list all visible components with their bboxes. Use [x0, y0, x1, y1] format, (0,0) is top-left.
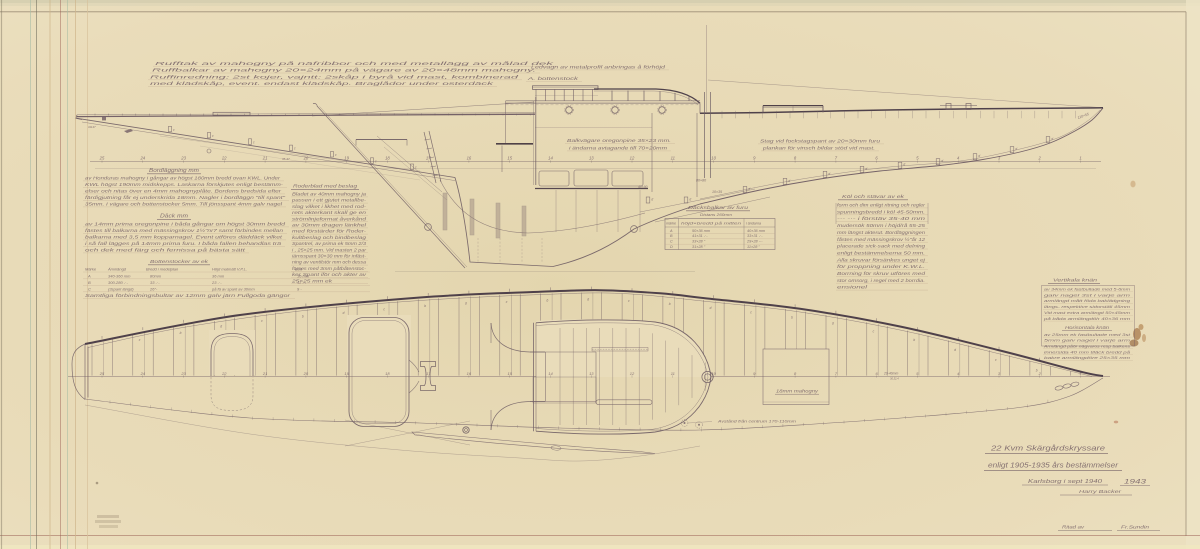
svg-text:300-280 -·-: 300-280 -·-	[108, 280, 128, 285]
svg-text:d: d	[710, 306, 712, 310]
svg-text:bakre armlängdöre 25×35 mm: bakre armlängdöre 25×35 mm	[1044, 355, 1131, 360]
svg-text:5mm galv nagel i varje arm: 5mm galv nagel i varje arm	[1044, 338, 1131, 343]
svg-text:13: 13	[589, 156, 594, 161]
svg-text:av 30mm dragen länkhel: av 30mm dragen länkhel	[292, 223, 368, 228]
svg-text:Bottenstocker av ek: Bottenstocker av ek	[150, 259, 209, 265]
svg-text:d: d	[828, 172, 830, 176]
svg-text:340-360 mm: 340-360 mm	[108, 274, 131, 279]
svg-text:16: 16	[467, 156, 472, 161]
svg-text:ning av ventilstör mm och dess: ning av ventilstör mm och dessa	[292, 260, 367, 265]
svg-text:22: 22	[221, 156, 227, 161]
svg-text:Bordläggning mm: Bordläggning mm	[149, 168, 199, 174]
svg-text:färdigjutning får ej underskri: färdigjutning får ej underskrida 18mm. N…	[85, 195, 286, 200]
svg-text:i ändarna avtagande till 70×20: i ändarna avtagande till 70×20mm	[569, 146, 668, 151]
svg-text:b: b	[547, 298, 549, 302]
svg-text:11: 11	[671, 371, 675, 376]
svg-text:29-40mm: 29-40mm	[883, 372, 898, 376]
svg-text:i , 25×25 mm. Vid masten 2 p: i , 25×25 mm. Vid masten 2 par	[292, 247, 367, 252]
svg-text:20: 20	[303, 371, 309, 376]
svg-text:Horisontala knän: Horisontala knän	[1065, 325, 1110, 330]
svg-text:50×36 mm: 50×36 mm	[692, 229, 710, 233]
svg-text:slag vilket i likhet med rod-: slag vilket i likhet med rod-	[292, 204, 367, 209]
svg-text:35mm. I vägare och bottenstoc: 35mm. I vägare och bottenstocker 5mm. Ti…	[85, 202, 284, 207]
svg-text:19: 19	[344, 156, 349, 161]
svg-text:Roderblad med beslag: Roderblad med beslag	[293, 184, 358, 189]
svg-text:22 Kvm Skärgårdskryssare: 22 Kvm Skärgårdskryssare	[990, 444, 1105, 453]
svg-text:25×25 mm ek: 25×25 mm ek	[290, 278, 333, 283]
svg-text:23 -·-: 23 -·-	[211, 280, 222, 285]
svg-text:passen i ett gjutet metallbe-: passen i ett gjutet metallbe-	[291, 198, 367, 203]
svg-text:18: 18	[385, 156, 390, 161]
svg-text:33×31 -·-: 33×31 -·-	[747, 234, 763, 238]
svg-text:Distans 260mm: Distans 260mm	[700, 213, 732, 217]
svg-text:ensionel: ensionel	[837, 285, 869, 290]
svg-text:Fr.Sundin: Fr.Sundin	[1121, 525, 1150, 530]
svg-text:innersida 40 mm tiläck bredd: innersida 40 mm tiläck bredd på	[1044, 349, 1131, 354]
svg-text:13: 13	[589, 371, 594, 376]
svg-text:Ämnlängd: Ämnlängd	[107, 267, 127, 272]
svg-text:25: 25	[99, 371, 105, 376]
svg-text:Ledvagn av metalprofil anbring: Ledvagn av metalprofil anbringas å förhö…	[531, 64, 666, 70]
svg-text:D: D	[670, 245, 673, 249]
svg-text:16: 16	[467, 371, 472, 376]
svg-text:galv nagel 3st i varje arm: galv nagel 3st i varje arm	[1044, 292, 1132, 297]
svg-text:förses med 3mm påtbåtenstoc-: förses med 3mm påtbåtenstoc-	[292, 266, 367, 271]
svg-text:10×35: 10×35	[712, 190, 722, 194]
svg-text:b: b	[913, 338, 915, 342]
svg-text:1: 1	[1079, 371, 1081, 376]
svg-text:Ruffbalkar av mahogny 20×24mm: Ruffbalkar av mahogny 20×24mm på vägare …	[152, 68, 536, 73]
svg-text:Vid mast extra armlängd 50×45: Vid mast extra armlängd 50×45mm	[1044, 310, 1131, 315]
svg-text:Ruffinredning: 2st kojer, vajn: Ruffinredning: 2st kojer, vajntt: 2skåp …	[150, 74, 520, 79]
svg-text:A. bottenstock: A. bottenstock	[526, 76, 579, 81]
svg-text:strömlinjeformat åverkånd: strömlinjeformat åverkånd	[292, 216, 367, 221]
svg-text:12: 12	[630, 156, 635, 161]
svg-text:av Honduras mahogny i gångar a: av Honduras mahogny i gångar av högst 18…	[85, 176, 281, 181]
svg-text:A: A	[87, 274, 91, 279]
svg-text:med förstärder för Roder-: med förstärder för Roder-	[292, 229, 367, 234]
svg-text:balkarna med 3,5 mm kopparnage: balkarna med 3,5 mm kopparnagel. Event u…	[85, 235, 283, 240]
svg-text:i så fall lägges på 14mm prima: i så fall lägges på 14mm prima furu. I b…	[85, 241, 282, 246]
svg-text:33 -·-: 33 -·-	[150, 280, 160, 285]
svg-text:plankan för vinsch bildar stöd: plankan för vinsch bildar stöd vid mast.	[761, 146, 875, 151]
svg-text:10: 10	[711, 156, 716, 161]
svg-text:Höjd matmätt V.P.L.: Höjd matmätt V.P.L.	[212, 267, 247, 272]
svg-text:med klädskåp, event. endast kl: med klädskåp, event. endast klädskåp. Br…	[150, 81, 495, 86]
svg-text:Avstånd från centrum 170-110mm: Avstånd från centrum 170-110mm	[717, 420, 796, 424]
svg-text:spunningsbredd i köl 45-50mm.: spunningsbredd i köl 45-50mm.	[837, 209, 925, 214]
svg-text:elser och nitas över en 4mm ma: elser och nitas över en 4mm mahognyplåte…	[85, 189, 282, 194]
svg-text:b: b	[1036, 369, 1038, 373]
svg-text:b: b	[424, 304, 426, 308]
svg-text:Alla skruvar försänkes unget e: Alla skruvar försänkes unget ej	[835, 257, 926, 262]
svg-text:80×80: 80×80	[696, 179, 706, 183]
svg-text:d: d	[903, 163, 905, 167]
svg-text:33×28 ": 33×28 "	[692, 240, 706, 244]
svg-text:Köl och stävar av ek: Köl och stävar av ek	[842, 194, 905, 199]
svg-text:Inudersök 50mm i höjd/rå 55-25: Inudersök 50mm i höjd/rå 55-25	[837, 223, 926, 228]
svg-text:KWL högst 190mm midskepps. L: KWL högst 190mm midskepps. Laskarna förs…	[85, 182, 284, 187]
svg-text:b: b	[180, 331, 182, 335]
svg-text:av 14mm prima oregonpine i båd: av 14mm prima oregonpine i båda gångar o…	[85, 222, 286, 227]
svg-text:Bredd i medelplan: Bredd i medelplan	[146, 267, 179, 272]
svg-text:d: d	[788, 179, 790, 183]
svg-text:d: d	[465, 302, 467, 306]
svg-text:15: 15	[507, 156, 512, 161]
svg-text:placerade sick-sack med delnin: placerade sick-sack med delning	[836, 244, 926, 249]
svg-text:och dek med färg och fernissa: och dek med färg och fernissa på bästa s…	[85, 248, 247, 253]
svg-text:armlängd mått föda baklädgnin: armlängd mått föda baklädgning	[1044, 298, 1131, 303]
svg-text:rets akterkant skall ge en: rets akterkant skall ge en	[292, 210, 367, 215]
svg-text:31×28 ": 31×28 "	[692, 245, 706, 249]
svg-text:Armlängd påör nägvaros resp ba: Armlängd påör nägvaros resp balkens	[1043, 344, 1130, 349]
svg-text:d: d	[954, 348, 956, 352]
svg-text:A: A	[669, 229, 673, 233]
svg-text:15: 15	[507, 371, 512, 376]
svg-text:Samtliga förbindningsbultar av: Samtliga förbindningsbultar av 12mm galv…	[85, 293, 291, 298]
svg-text:Däcksbalkar av furu: Däcksbalkar av furu	[688, 205, 749, 210]
svg-text:d: d	[1015, 147, 1017, 151]
svg-text:11: 11	[671, 156, 675, 161]
svg-text:d: d	[1051, 137, 1053, 141]
svg-text:för proppning under K.W.L.: för proppning under K.W.L.	[837, 264, 925, 269]
svg-text:40×36 mm: 40×36 mm	[747, 229, 765, 233]
svg-text:form och dim enligt ritning oc: form och dim enligt ritning och regler	[837, 203, 926, 208]
svg-text:enligt bestämmelserna 50 mm.: enligt bestämmelserna 50 mm.	[837, 250, 925, 255]
svg-text:höjd×bredd på mitten: höjd×bredd på mitten	[681, 222, 741, 226]
svg-text:20: 20	[303, 156, 309, 161]
svg-text:Rufftak av mahogny på näfribbo: Rufftak av mahogny på näfribbor och med …	[155, 61, 555, 66]
svg-text:Karlsborg i sept 1940: Karlsborg i sept 1940	[1028, 479, 1102, 485]
svg-text:av 25mm ek fastbultade med 3st: av 25mm ek fastbultade med 3st	[1044, 332, 1131, 337]
svg-text:1943: 1943	[1124, 479, 1147, 486]
svg-text:41×31 -·-: 41×31 -·-	[692, 234, 708, 238]
svg-text:på båda armlängdöh 40×36 mm: på båda armlängdöh 40×36 mm	[1042, 316, 1131, 321]
svg-text:14: 14	[548, 371, 553, 376]
svg-text:11×28 ": 11×28 "	[747, 245, 760, 249]
svg-text:29×28 -·-: 29×28 -·-	[746, 240, 763, 244]
svg-text:31147: 31147	[88, 125, 96, 129]
svg-text:21: 21	[262, 371, 267, 376]
svg-text:stor omsorg, i regel med 2 bor: stor omsorg, i regel med 2 borrdia.	[837, 278, 925, 283]
svg-text:d: d	[651, 198, 653, 202]
svg-text:fästes till balkarna med mässi: fästes till balkarna med mässingskrov 1½…	[85, 228, 284, 233]
svg-text:d: d	[689, 198, 691, 202]
svg-text:Borrning för skruv utföres med: Borrning för skruv utföres med	[837, 271, 926, 276]
svg-text:enligt 1905-1935 års bestämmel: enligt 1905-1935 års bestämmelser	[988, 461, 1119, 470]
svg-text:40×90: 40×90	[638, 185, 648, 189]
svg-text:d: d	[865, 167, 867, 171]
svg-text:b: b	[669, 302, 671, 306]
svg-text:22: 22	[221, 371, 227, 376]
svg-text:Stag vid fockstagspant av 20×3: Stag vid fockstagspant av 20×30mm furu	[760, 139, 881, 144]
svg-text:B: B	[88, 280, 91, 285]
svg-text:Ritad av: Ritad av	[1062, 525, 1085, 530]
svg-text:9 -: 9 -	[297, 287, 302, 292]
svg-text:b: b	[302, 315, 304, 319]
svg-text:Harry Backer: Harry Backer	[1079, 489, 1122, 495]
svg-text:14: 14	[548, 156, 553, 161]
svg-text:23: 23	[180, 371, 186, 376]
svg-text:Däck mm: Däck mm	[160, 214, 188, 220]
svg-text:Vertikala knän: Vertikala knän	[1053, 278, 1098, 283]
svg-text:kultbeslag och bindbeslag: kultbeslag och bindbeslag	[292, 235, 367, 240]
svg-text:märke: märke	[666, 222, 676, 226]
svg-text:36 mm: 36 mm	[212, 274, 225, 279]
svg-text:d: d	[978, 154, 980, 158]
svg-text:1: 1	[1079, 156, 1081, 161]
svg-text:mm längst akterut. Bordläggnin: mm längst akterut. Bordläggningen	[837, 230, 926, 235]
svg-text:ker Spant iför och akter av: ker Spant iför och akter av	[292, 272, 367, 277]
svg-text:d: d	[220, 325, 222, 329]
svg-text:av 34mm ek fastbultade med 5-6: av 34mm ek fastbultade med 5-6mm	[1044, 287, 1131, 292]
svg-text:26"-: 26"-	[149, 287, 158, 292]
svg-text:-·- -·- i förstäv 35-40 m: -·- -·- i förstäv 35-40 mm	[837, 216, 926, 221]
svg-text:d: d	[941, 159, 943, 163]
svg-text:30,32,4: 30,32,4	[890, 377, 899, 381]
svg-text:18: 18	[385, 371, 390, 376]
svg-text:fåstes med mässingskrov ½"år 1: fåstes med mässingskrov ½"år 12	[837, 237, 926, 242]
svg-text:Märke: Märke	[85, 267, 97, 272]
svg-text:Bladet av 40mm mahogny ja: Bladet av 40mm mahogny ja	[292, 192, 367, 197]
svg-text:18mm mahogny: 18mm mahogny	[776, 389, 819, 394]
svg-text:C: C	[670, 240, 673, 244]
svg-text:24: 24	[139, 156, 145, 161]
svg-text:längs- respektive sidorställ 4: längs- respektive sidorställ 45mm	[1044, 304, 1131, 309]
svg-text:på fä av spant av 30mm: på fä av spant av 30mm	[211, 287, 255, 292]
svg-text:25: 25	[99, 156, 105, 161]
svg-text:d: d	[832, 322, 834, 326]
svg-text:(3spant längd): (3spant längd)	[108, 287, 134, 292]
svg-text:80mm: 80mm	[150, 274, 162, 279]
svg-text:b: b	[791, 315, 793, 319]
svg-text:Balkvägare oregonpine 35×23 m: Balkvägare oregonpine 35×23 mm.	[567, 138, 671, 143]
svg-text:24: 24	[140, 371, 146, 376]
svg-text:d: d	[343, 311, 345, 315]
svg-text:iärnsspant 30×30 mm för infäst: iärnsspant 30×30 mm för infäst-	[292, 254, 367, 259]
svg-text:C: C	[88, 287, 91, 292]
svg-text:i ändarna: i ändarna	[746, 222, 761, 226]
svg-text:Spantrel, av prima ek 5mm 2/3: Spantrel, av prima ek 5mm 2/3	[292, 241, 367, 246]
svg-text:12: 12	[630, 371, 635, 376]
svg-text:23: 23	[180, 156, 186, 161]
svg-text:d: d	[587, 298, 589, 302]
